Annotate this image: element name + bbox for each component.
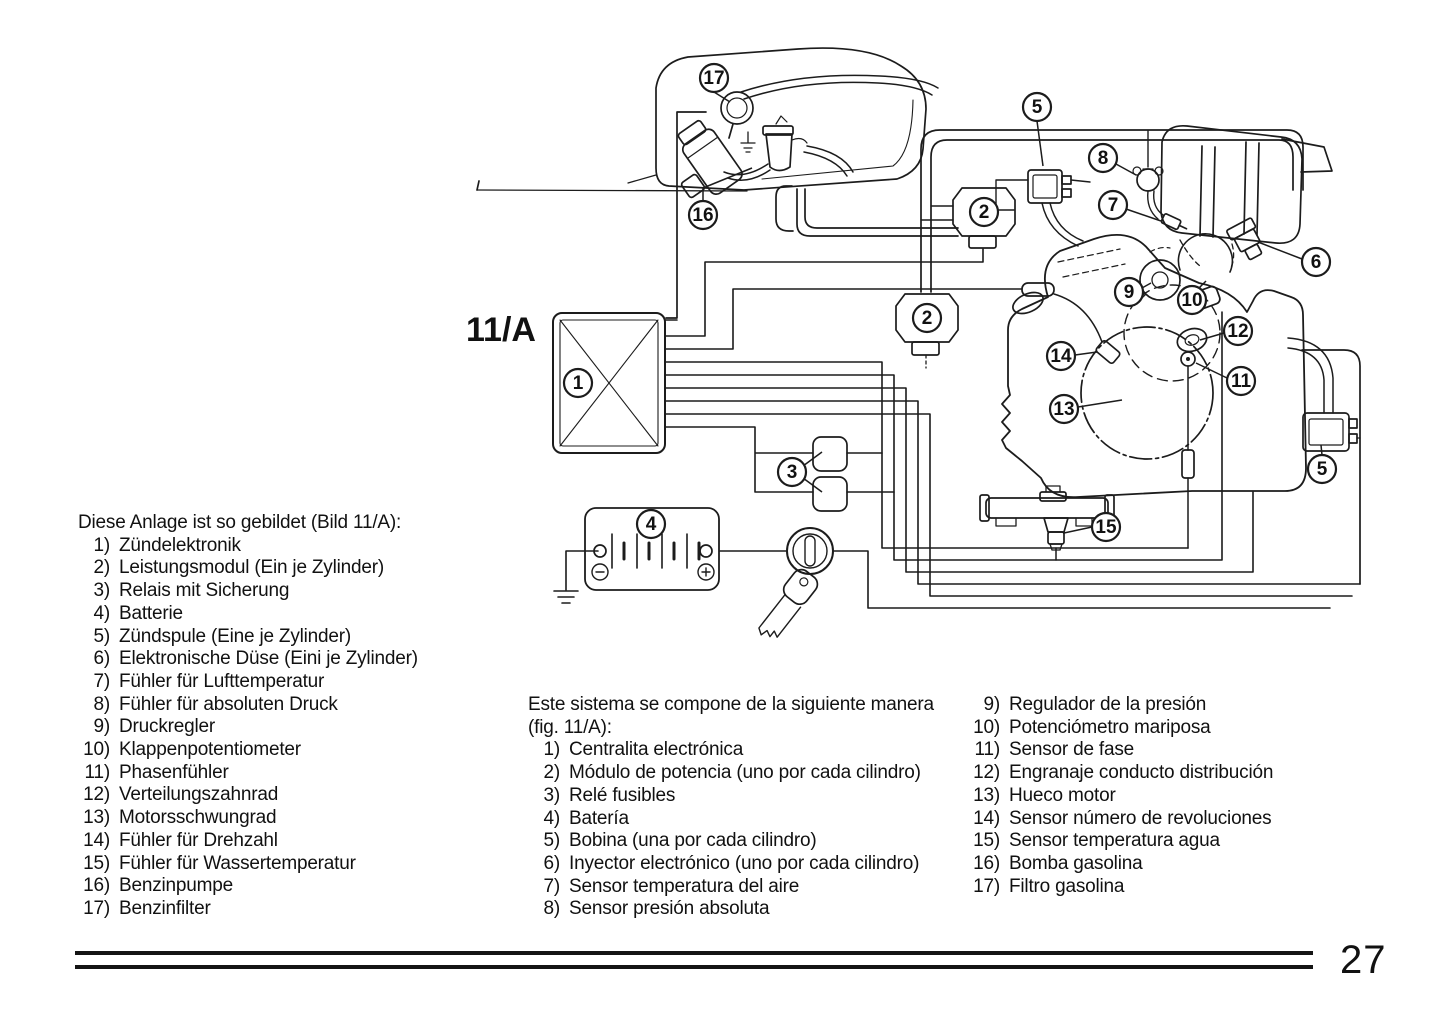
legend-item-number: 17) <box>78 898 110 921</box>
legend-item: 16)Benzinpumpe <box>78 875 418 898</box>
legend-item: 1)Zündelektronik <box>78 535 418 558</box>
legend-item-label: Relé fusibles <box>569 785 675 808</box>
legend-item: 17)Benzinfilter <box>78 898 418 921</box>
legend-item: 15)Fühler für Wassertemperatur <box>78 853 418 876</box>
legend-item-number: 9) <box>78 716 110 739</box>
legend-item: 1)Centralita electrónica <box>528 739 934 762</box>
legend-item: 14)Sensor número de revoluciones <box>962 808 1273 831</box>
page-number: 27 <box>1340 938 1387 983</box>
legend-item: 6)Elektronische Düse (Eini je Zylinder) <box>78 648 418 671</box>
legend-item-label: Sensor temperatura del aire <box>569 876 799 899</box>
legend-item-number: 8) <box>528 898 560 921</box>
callout-number-10: 10 <box>1181 290 1202 311</box>
legend-item-label: Engranaje conducto distribución <box>1009 762 1273 785</box>
legend-item-number: 2) <box>78 557 110 580</box>
callout-leader-5 <box>1321 445 1322 455</box>
legend-item: 3)Relais mit Sicherung <box>78 580 418 603</box>
legend-item: 11)Sensor de fase <box>962 739 1273 762</box>
legend-item: 17)Filtro gasolina <box>962 876 1273 899</box>
callout-leader-9 <box>1142 283 1151 288</box>
callout-number-1: 1 <box>573 373 584 394</box>
callout-number-5: 5 <box>1317 459 1328 480</box>
callout-number-7: 7 <box>1108 195 1119 216</box>
callouts: 122345567891011121314151617 <box>564 64 1336 541</box>
legend-item-label: Bomba gasolina <box>1009 853 1142 876</box>
callout-number-9: 9 <box>1124 282 1135 303</box>
legend-item-number: 14) <box>962 808 1000 831</box>
legend-item-number: 16) <box>78 875 110 898</box>
ignition-coil-front <box>996 170 1090 246</box>
legend-item-label: Regulador de la presión <box>1009 694 1206 717</box>
callout-leader-15 <box>1064 527 1092 533</box>
legend-item-number: 3) <box>78 580 110 603</box>
legend-item-label: Phasenfühler <box>119 762 229 785</box>
legend-item-label: Batterie <box>119 603 183 626</box>
legend-item-label: Elektronische Düse (Eini je Zylinder) <box>119 648 418 671</box>
legend-item-label: Sensor temperatura agua <box>1009 830 1220 853</box>
callout-number-12: 12 <box>1227 321 1248 342</box>
callout-leader-7 <box>1126 209 1161 221</box>
legend-item-label: Fühler für Wassertemperatur <box>119 853 356 876</box>
legend-item-number: 12) <box>78 784 110 807</box>
legend-item-label: Fühler für Lufttemperatur <box>119 671 324 694</box>
callout-number-11: 11 <box>1231 371 1252 392</box>
legend-german: Diese Anlage ist so gebildet (Bild 11/A)… <box>78 512 418 921</box>
callout-number-5: 5 <box>1032 97 1043 118</box>
legend-item: 5)Zündspule (Eine je Zylinder) <box>78 626 418 649</box>
legend-item: 5)Bobina (una por cada cilindro) <box>528 830 934 853</box>
legend-item-label: Filtro gasolina <box>1009 876 1124 899</box>
legend-item-label: Motorsschwungrad <box>119 807 276 830</box>
legend-item: 13)Hueco motor <box>962 785 1273 808</box>
callout-number-16: 16 <box>692 205 713 226</box>
legend-item-label: Klappenpotentiometer <box>119 739 301 762</box>
legend-item-label: Bobina (una por cada cilindro) <box>569 830 817 853</box>
legend-item-label: Verteilungszahnrad <box>119 784 278 807</box>
legend-item: 10)Potenciómetro mariposa <box>962 717 1273 740</box>
figure-label: 11/A <box>466 311 536 349</box>
legend-item: 8)Fühler für absoluten Druck <box>78 694 418 717</box>
legend-item-label: Inyector electrónico (uno por cada cilin… <box>569 853 919 876</box>
callout-leader-5 <box>1037 121 1043 166</box>
legend-item: 7)Sensor temperatura del aire <box>528 876 934 899</box>
legend-item-number: 6) <box>78 648 110 671</box>
legend-item: 15)Sensor temperatura agua <box>962 830 1273 853</box>
legend-item-label: Zündspule (Eine je Zylinder) <box>119 626 351 649</box>
legend-item-number: 2) <box>528 762 560 785</box>
legend-item-number: 11) <box>78 762 110 785</box>
legend-spanish-header-1: Este sistema se compone de la siguiente … <box>528 694 934 717</box>
legend-item: 12)Verteilungszahnrad <box>78 784 418 807</box>
legend-spanish-header-2: (fig. 11/A): <box>528 717 934 740</box>
legend-item-label: Zündelektronik <box>119 535 241 558</box>
ignition-key-switch <box>752 528 833 644</box>
legend-item-label: Relais mit Sicherung <box>119 580 289 603</box>
legend-item-label: Benzinpumpe <box>119 875 233 898</box>
legend-item: 13)Motorsschwungrad <box>78 807 418 830</box>
diagram-artwork <box>477 48 1360 644</box>
legend-item-number: 15) <box>962 830 1000 853</box>
legend-item-label: Sensor presión absoluta <box>569 898 769 921</box>
legend-item-number: 4) <box>528 808 560 831</box>
legend-item-number: 10) <box>78 739 110 762</box>
legend-item-number: 4) <box>78 603 110 626</box>
footer-rule-bottom <box>75 965 1313 969</box>
ignition-coil-rear <box>1288 338 1360 451</box>
legend-item-number: 5) <box>528 830 560 853</box>
legend-item-label: Sensor número de revoluciones <box>1009 808 1271 831</box>
legend-item-number: 1) <box>78 535 110 558</box>
callout-number-4: 4 <box>646 514 657 535</box>
legend-item-number: 10) <box>962 717 1000 740</box>
legend-item-number: 12) <box>962 762 1000 785</box>
legend-item-label: Potenciómetro mariposa <box>1009 717 1211 740</box>
flywheel <box>1081 327 1213 459</box>
legend-item-label: Fühler für Drehzahl <box>119 830 278 853</box>
footer-rule-top <box>75 951 1313 955</box>
fuel-level-unit <box>724 116 853 180</box>
legend-item-label: Druckregler <box>119 716 215 739</box>
legend-item-number: 6) <box>528 853 560 876</box>
legend-item-number: 5) <box>78 626 110 649</box>
legend-item: 6)Inyector electrónico (uno por cada cil… <box>528 853 934 876</box>
legend-item: 2)Módulo de potencia (uno por cada cilin… <box>528 762 934 785</box>
legend-item: 14)Fühler für Drehzahl <box>78 830 418 853</box>
legend-item: 11)Phasenfühler <box>78 762 418 785</box>
legend-item: 10)Klappenpotentiometer <box>78 739 418 762</box>
pressure-regulator <box>1138 260 1180 302</box>
legend-item: 9)Druckregler <box>78 716 418 739</box>
callout-number-2: 2 <box>922 308 933 329</box>
legend-item-number: 17) <box>962 876 1000 899</box>
callout-number-2: 2 <box>979 202 990 223</box>
legend-item-label: Centralita electrónica <box>569 739 743 762</box>
legend-item: 8)Sensor presión absoluta <box>528 898 934 921</box>
distribution-gear <box>1174 325 1209 355</box>
legend-item: 4)Batterie <box>78 603 418 626</box>
legend-item-number: 16) <box>962 853 1000 876</box>
legend-item-label: Sensor de fase <box>1009 739 1134 762</box>
legend-item: 4)Batería <box>528 808 934 831</box>
legend-item: 7)Fühler für Lufttemperatur <box>78 671 418 694</box>
callout-number-6: 6 <box>1311 252 1322 273</box>
legend-item-number: 3) <box>528 785 560 808</box>
legend-item: 9)Regulador de la presión <box>962 694 1273 717</box>
callout-number-14: 14 <box>1050 346 1072 367</box>
legend-item-number: 13) <box>78 807 110 830</box>
legend-item: 2)Leistungsmodul (Ein je Zylinder) <box>78 557 418 580</box>
fuse-relays <box>813 437 847 511</box>
power-module-a <box>921 188 1015 248</box>
map-sensor <box>1133 131 1163 219</box>
callout-number-3: 3 <box>787 462 798 483</box>
callout-number-13: 13 <box>1053 399 1074 420</box>
legend-item-number: 7) <box>78 671 110 694</box>
callout-number-15: 15 <box>1095 517 1117 538</box>
legend-item: 16)Bomba gasolina <box>962 853 1273 876</box>
legend-item-number: 8) <box>78 694 110 717</box>
legend-item-label: Módulo de potencia (uno por cada cilindr… <box>569 762 921 785</box>
callout-leader-16 <box>703 168 752 188</box>
callout-number-8: 8 <box>1098 148 1109 169</box>
legend-spanish: Este sistema se compone de la siguiente … <box>528 694 934 921</box>
legend-item-number: 9) <box>962 694 1000 717</box>
legend-item: 12)Engranaje conducto distribución <box>962 762 1273 785</box>
legend-item-label: Leistungsmodul (Ein je Zylinder) <box>119 557 384 580</box>
phase-sensor <box>1181 352 1195 548</box>
legend-item-number: 7) <box>528 876 560 899</box>
legend-german-header: Diese Anlage ist so gebildet (Bild 11/A)… <box>78 512 418 535</box>
legend-spanish-2: 9)Regulador de la presión10)Potenciómetr… <box>962 694 1273 898</box>
legend-item-number: 1) <box>528 739 560 762</box>
legend-item-label: Hueco motor <box>1009 785 1116 808</box>
legend-item-number: 11) <box>962 739 1000 762</box>
legend-item-number: 15) <box>78 853 110 876</box>
legend-item-label: Batería <box>569 808 629 831</box>
legend-item-number: 14) <box>78 830 110 853</box>
callout-leader-13 <box>1078 400 1122 407</box>
callout-number-17: 17 <box>703 68 724 89</box>
legend-item: 3)Relé fusibles <box>528 785 934 808</box>
legend-item-label: Fühler für absoluten Druck <box>119 694 338 717</box>
legend-item-number: 13) <box>962 785 1000 808</box>
legend-item-label: Benzinfilter <box>119 898 211 921</box>
manual-page: 11/A 122345567891011121314151617 Diese A… <box>0 0 1445 1018</box>
callout-leader-6 <box>1258 242 1302 259</box>
